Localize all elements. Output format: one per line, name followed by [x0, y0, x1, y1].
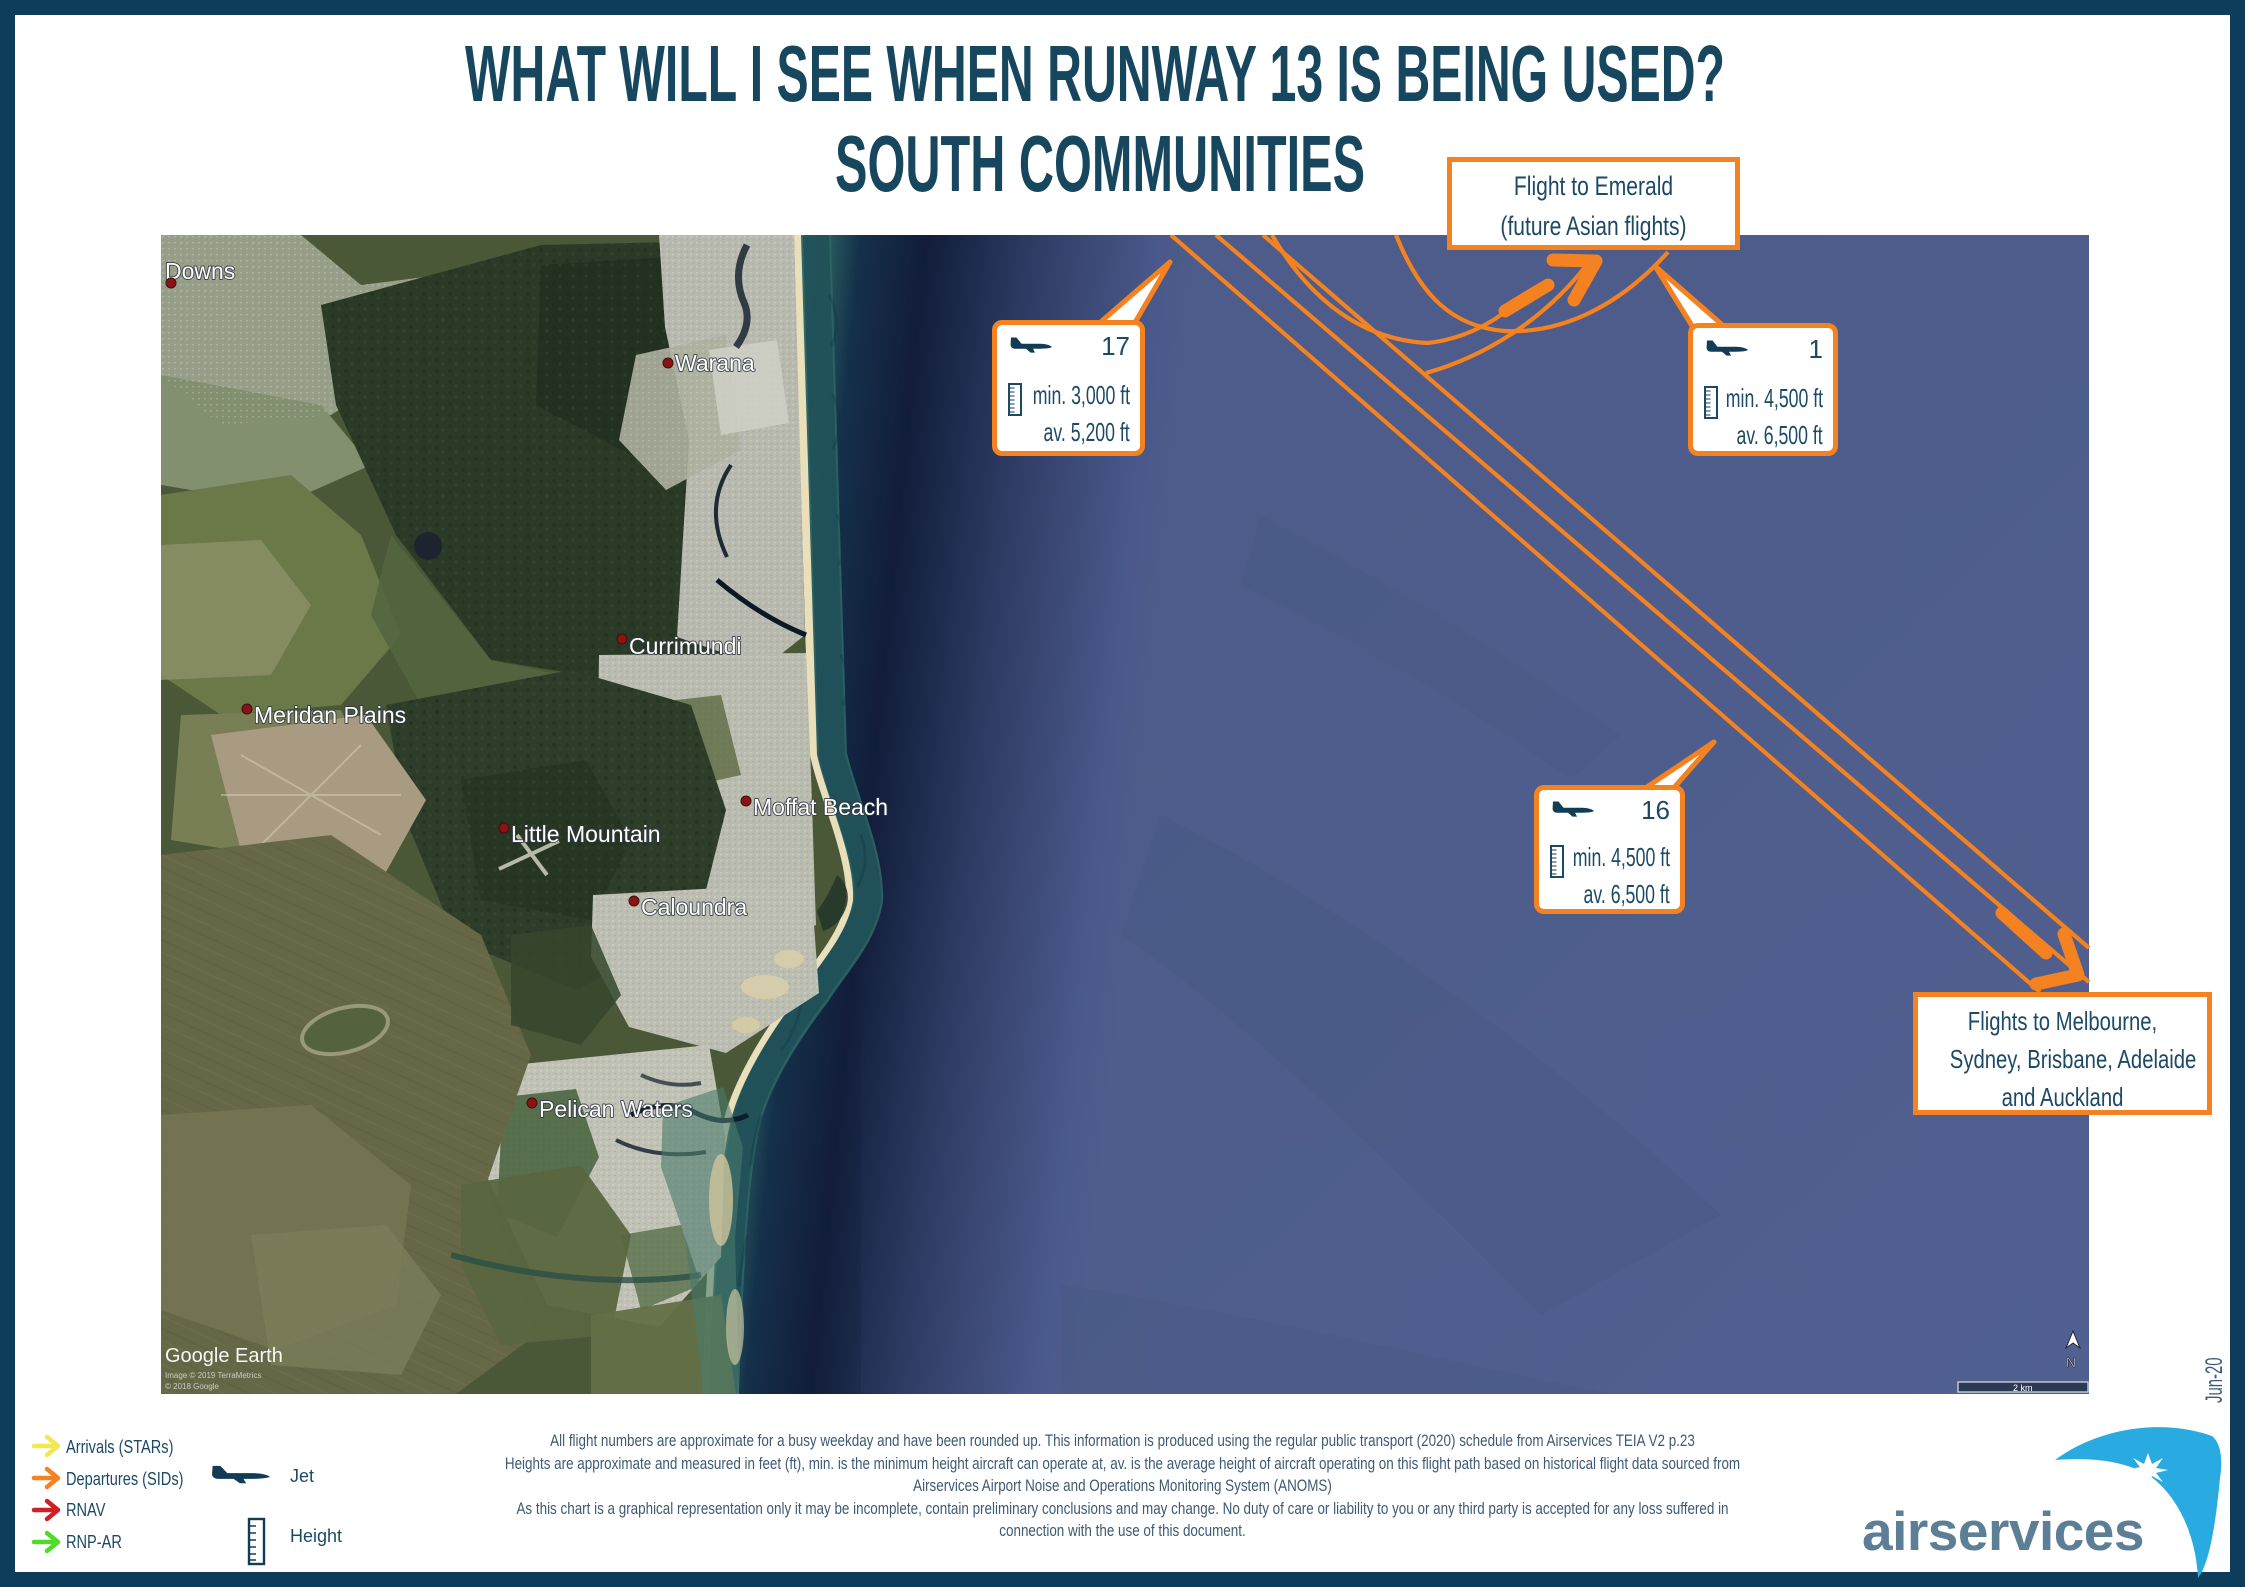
svg-text:airservices: airservices	[1862, 1500, 2144, 1562]
